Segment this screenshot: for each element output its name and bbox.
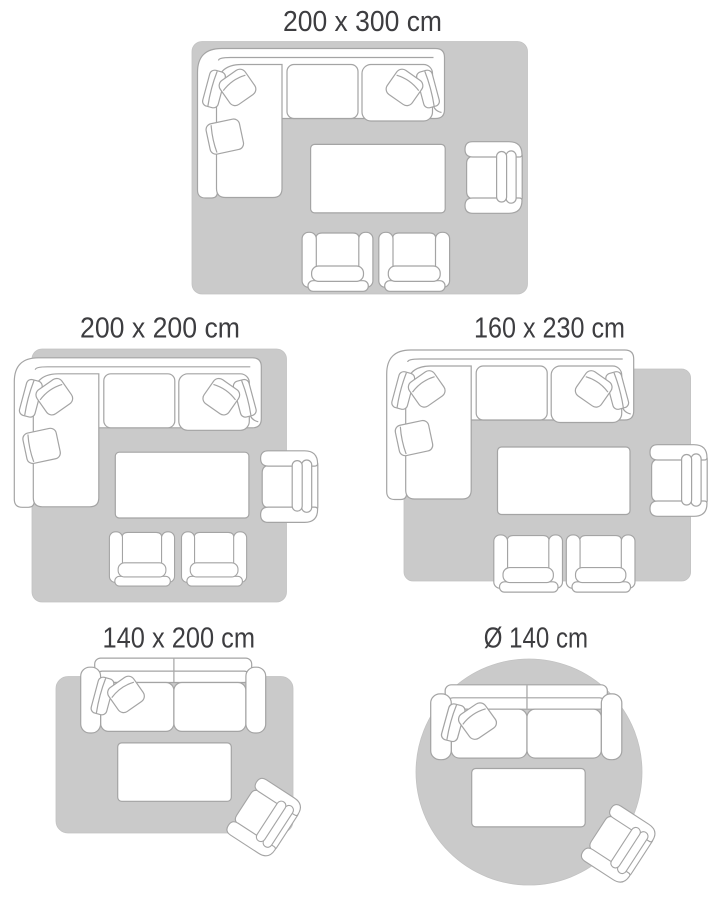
svg-text:140 x 200 cm: 140 x 200 cm: [103, 623, 256, 655]
svg-text:160 x 230 cm: 160 x 230 cm: [474, 313, 625, 345]
svg-text:200 x 300 cm: 200 x 300 cm: [283, 6, 442, 38]
svg-text:Ø 140 cm: Ø 140 cm: [484, 623, 588, 655]
svg-text:200 x 200 cm: 200 x 200 cm: [80, 313, 240, 345]
